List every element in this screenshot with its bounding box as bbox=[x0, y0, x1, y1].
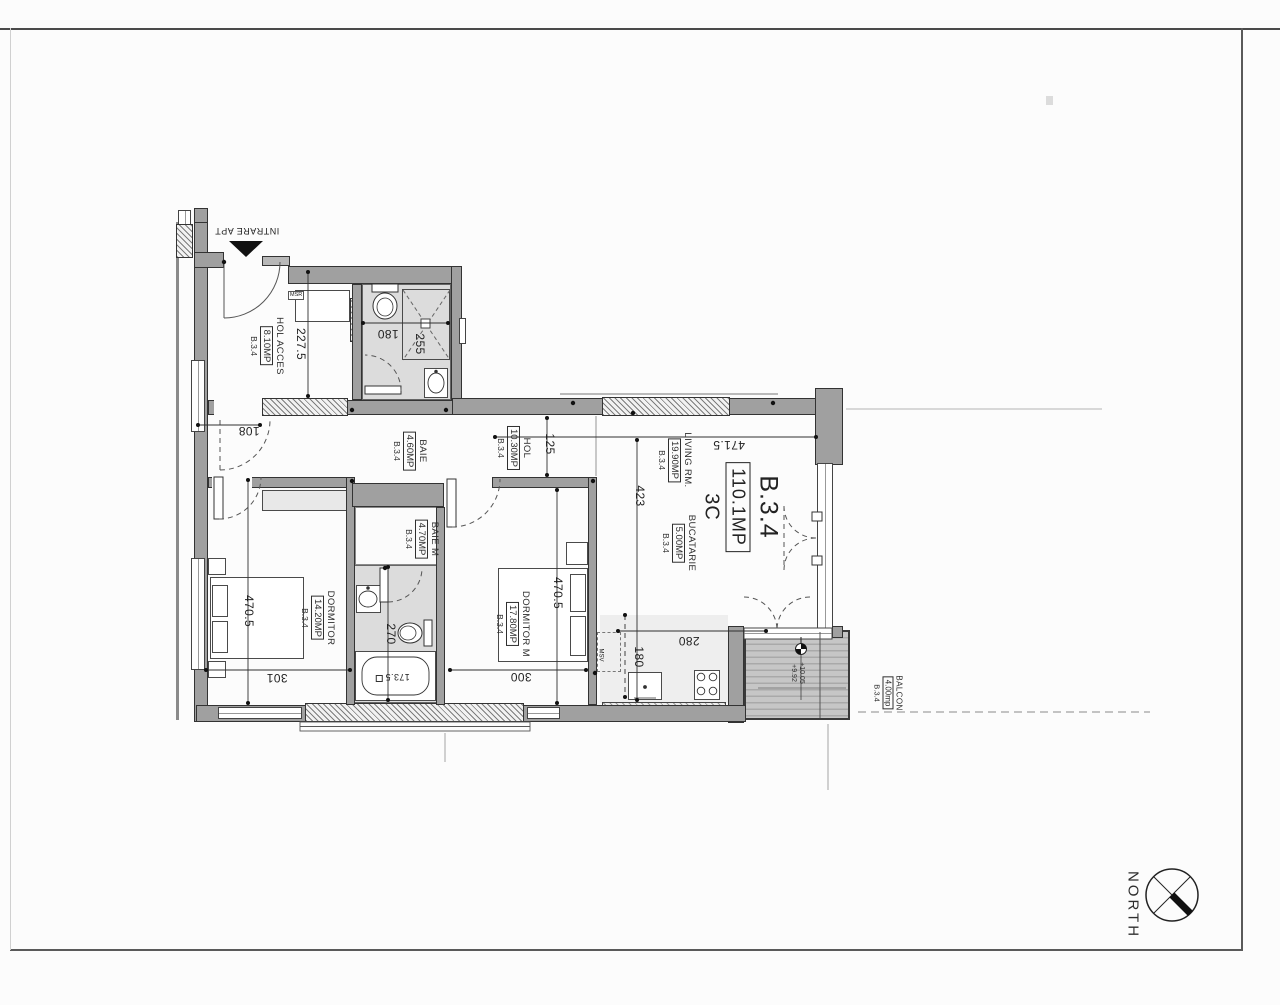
washer-tag: MSR bbox=[288, 291, 304, 300]
room-area: 5.00MP bbox=[672, 524, 685, 563]
room-name: HOL bbox=[521, 438, 532, 459]
room-name: BUCATARIE bbox=[686, 515, 697, 572]
room-label-dormitor: DORMITOR 14.20MP B.3.4 bbox=[300, 591, 336, 646]
level-values: +10.05 +9.92 bbox=[789, 662, 805, 684]
dim-108: 108 bbox=[238, 424, 259, 438]
room-unit: B.3.4 bbox=[873, 684, 882, 702]
dim-300: 300 bbox=[510, 670, 531, 684]
room-area: 8.10MP bbox=[260, 327, 273, 366]
room-name: DORMITOR M bbox=[520, 591, 531, 657]
dim-255: 255 bbox=[413, 333, 427, 354]
room-area: 17.80MP bbox=[506, 602, 519, 646]
dim-280: 280 bbox=[678, 634, 699, 648]
room-area: 19.90MP bbox=[668, 438, 681, 482]
room-unit: B.3.4 bbox=[496, 438, 506, 458]
dishwasher-tag: MSV bbox=[597, 647, 604, 662]
room-unit: B.3.4 bbox=[392, 441, 402, 461]
room-name: BAIE M bbox=[429, 522, 440, 557]
room-name: BAIE bbox=[417, 439, 428, 462]
dim-301: 301 bbox=[266, 671, 287, 685]
dim-227-5: 227.5 bbox=[294, 328, 308, 360]
room-unit: B.3.4 bbox=[300, 608, 310, 628]
room-name: BALCON bbox=[895, 675, 904, 710]
dim-471-5: 471.5 bbox=[713, 438, 745, 452]
room-area: 10.30MP bbox=[507, 426, 520, 470]
level-upper: +10.05 bbox=[797, 662, 805, 684]
room-area: 4.70MP bbox=[415, 520, 428, 559]
entrance-label: INTRARE APT bbox=[215, 226, 280, 236]
dim-270: 270 bbox=[384, 623, 398, 644]
dim-125: 125 bbox=[543, 433, 557, 454]
apartment-area: 110.1MP bbox=[726, 462, 751, 552]
level-lower: +9.92 bbox=[789, 664, 797, 682]
scanned-floor-plan-sheet: INTRARE APT HOL ACCES 8.10MP B.3.4 227.5… bbox=[0, 0, 1280, 1005]
room-area: 4.00mp bbox=[883, 677, 894, 710]
room-label-hol-acces: HOL ACCES 8.10MP B.3.4 bbox=[249, 317, 285, 375]
room-name: LIVING RM. bbox=[682, 432, 693, 487]
room-area: 4.60MP bbox=[403, 432, 416, 471]
room-unit: B.3.4 bbox=[495, 614, 505, 634]
room-label-dormitor-m: DORMITOR M 17.80MP B.3.4 bbox=[495, 591, 531, 657]
room-area: 14.20MP bbox=[311, 596, 324, 640]
dim-423: 423 bbox=[633, 485, 647, 506]
dim-180-baie: 180 bbox=[377, 327, 398, 341]
apartment-title: B.3.4 110.1MP 3C bbox=[700, 462, 783, 552]
tub-symbol bbox=[376, 675, 383, 682]
dim-470-5-dormitor: 470.5 bbox=[242, 595, 256, 627]
apartment-type: 3C bbox=[700, 493, 723, 521]
room-label-hol: HOL 10.30MP B.3.4 bbox=[496, 426, 532, 470]
apartment-code: B.3.4 bbox=[754, 475, 783, 538]
room-label-bucatarie: BUCATARIE 5.00MP B.3.4 bbox=[661, 515, 697, 572]
north-label: NORTH bbox=[1125, 871, 1142, 939]
room-label-baie: BAIE 4.60MP B.3.4 bbox=[392, 432, 428, 471]
dim-173-5: 173.5 bbox=[376, 672, 410, 682]
room-label-baie-m: BAIE M 4.70MP B.3.4 bbox=[404, 520, 440, 559]
room-unit: B.3.4 bbox=[661, 533, 671, 553]
dim-value: 173.5 bbox=[385, 672, 410, 682]
room-unit: B.3.4 bbox=[404, 529, 414, 549]
room-label-living: LIVING RM. 19.90MP B.3.4 bbox=[657, 432, 693, 487]
dim-470-5-dormitor-m: 470.5 bbox=[551, 577, 565, 609]
room-unit: B.3.4 bbox=[657, 450, 667, 470]
dim-180-bucatarie: 180 bbox=[632, 646, 646, 667]
room-name: DORMITOR bbox=[325, 591, 336, 646]
label-layer: INTRARE APT HOL ACCES 8.10MP B.3.4 227.5… bbox=[0, 0, 1280, 1005]
room-label-balcon: BALCON 4.00mp B.3.4 bbox=[873, 675, 904, 710]
room-unit: B.3.4 bbox=[249, 336, 259, 356]
room-name: HOL ACCES bbox=[274, 317, 285, 375]
